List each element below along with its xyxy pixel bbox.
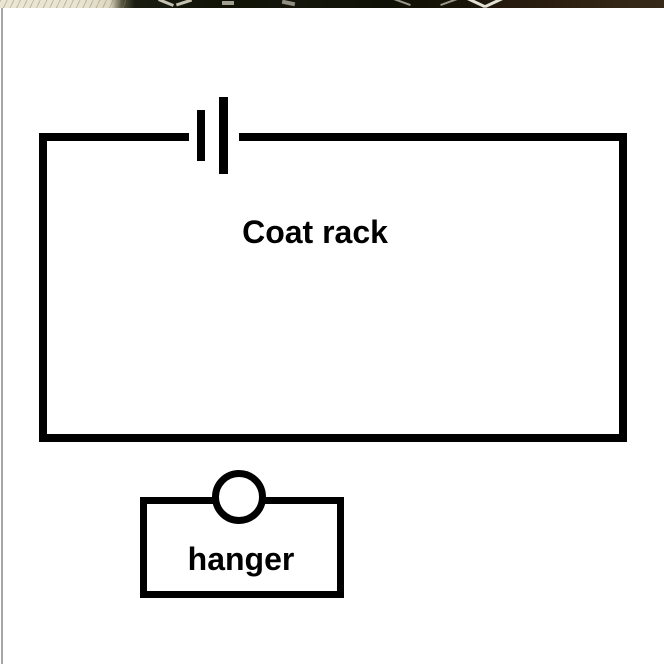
battery-long-plate-icon [219, 97, 228, 174]
coat-rack-label: Coat rack [242, 216, 388, 248]
battery-short-plate-icon [197, 110, 205, 161]
sheet-left-edge-line [1, 8, 3, 664]
photo-strip-highlight [158, 0, 174, 7]
photo-strip-highlight [484, 0, 503, 8]
photo-strip-highlight [176, 0, 192, 6]
photo-strip-highlight [282, 0, 296, 6]
photo-strip-highlight [466, 0, 485, 8]
photo-strip-highlight [440, 0, 458, 6]
photo-strip-highlight [222, 1, 234, 5]
hanger-hook-circle-icon [212, 470, 266, 524]
photo-strip-weave-texture [0, 0, 126, 8]
photo-strip-highlight [393, 0, 411, 6]
hanger-label: hanger [188, 543, 295, 575]
coat-rack-box [39, 133, 627, 442]
background-photo-strip [0, 0, 664, 8]
diagram-canvas: Coat rack hanger [0, 0, 664, 664]
